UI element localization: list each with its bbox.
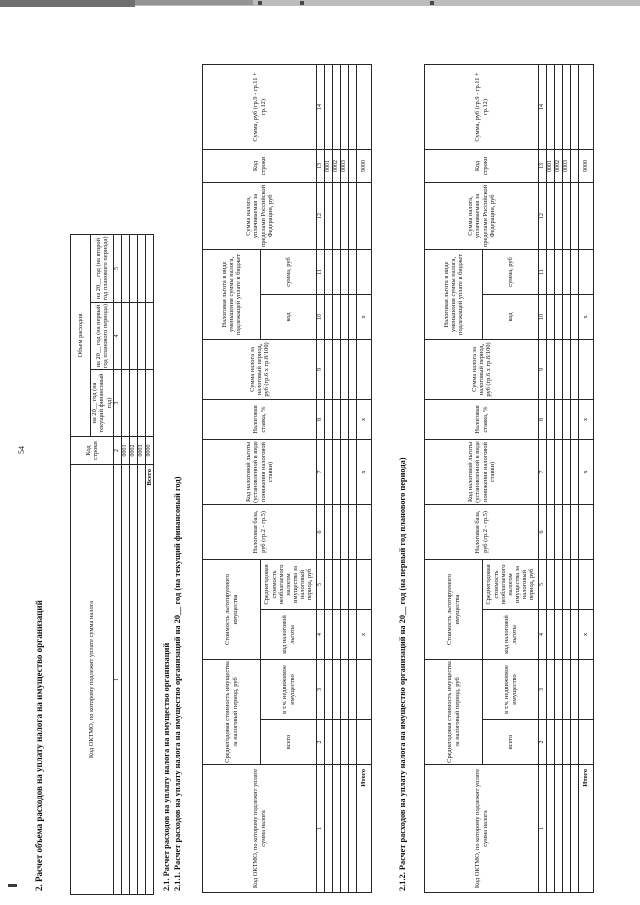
empty-cell bbox=[325, 659, 333, 719]
x-mark-cell: х bbox=[357, 439, 372, 504]
empty-cell bbox=[547, 659, 555, 719]
row-code-cell: 0003 bbox=[138, 437, 146, 465]
header-benefit-code-rate: Код налоговой льготы (установленной в ви… bbox=[203, 439, 317, 504]
col-number: 9 bbox=[539, 339, 547, 399]
empty-cell bbox=[571, 399, 579, 439]
header-line-code: Код строки bbox=[425, 149, 539, 182]
col-number: 4 bbox=[317, 609, 325, 659]
empty-cell bbox=[571, 659, 579, 719]
empty-cell bbox=[341, 399, 349, 439]
col-number: 2 bbox=[317, 720, 325, 765]
table-row bbox=[349, 64, 357, 892]
col-number: 1 bbox=[539, 765, 547, 893]
row-code-cell: 0002 bbox=[130, 437, 138, 465]
total-row: Итого х х х х 9000 bbox=[579, 64, 594, 892]
empty-cell bbox=[563, 64, 571, 149]
header-tax-rate: Налоговая ставка, % bbox=[203, 399, 317, 439]
empty-cell bbox=[555, 64, 563, 149]
header-benefit-code2: код bbox=[261, 294, 317, 339]
empty-cell bbox=[357, 659, 372, 719]
empty-cell bbox=[571, 294, 579, 339]
col-number: 4 bbox=[114, 303, 122, 370]
empty-cell bbox=[333, 559, 341, 609]
empty-cell bbox=[146, 370, 154, 437]
col-number: 1 bbox=[317, 765, 325, 893]
empty-cell bbox=[341, 609, 349, 659]
empty-cell bbox=[333, 249, 341, 294]
header-line-code: Код строки bbox=[203, 149, 317, 182]
empty-cell bbox=[130, 303, 138, 370]
row-code-cell: 0001 bbox=[122, 437, 130, 465]
header-sum-total: Сумма, руб (гр.9 - гр.11 + гр.12) bbox=[425, 64, 539, 149]
empty-cell bbox=[571, 559, 579, 609]
table-row: 0001 bbox=[547, 64, 555, 892]
empty-cell bbox=[325, 339, 333, 399]
empty-cell bbox=[333, 765, 341, 893]
empty-cell bbox=[563, 339, 571, 399]
empty-cell bbox=[563, 294, 571, 339]
empty-cell bbox=[579, 504, 594, 559]
empty-cell bbox=[130, 465, 138, 895]
col-number: 14 bbox=[539, 64, 547, 149]
empty-cell bbox=[357, 504, 372, 559]
x-mark-cell: х bbox=[357, 294, 372, 339]
total-label: Итого bbox=[357, 765, 372, 893]
empty-cell bbox=[571, 149, 579, 182]
empty-cell bbox=[122, 303, 130, 370]
empty-cell bbox=[563, 504, 571, 559]
scanned-page: 54 2. Расчет объема расходов на уплату н… bbox=[0, 0, 640, 905]
empty-cell bbox=[579, 720, 594, 765]
empty-cell bbox=[547, 504, 555, 559]
col-number: 6 bbox=[317, 504, 325, 559]
empty-cell bbox=[357, 249, 372, 294]
empty-cell bbox=[349, 720, 357, 765]
header-oktmo: Код ОКТМО, по которому подлежит уплате с… bbox=[203, 765, 317, 893]
x-mark-cell: х bbox=[579, 439, 594, 504]
empty-cell bbox=[333, 64, 341, 149]
empty-cell bbox=[122, 234, 130, 302]
header-incl-realty: в т.ч. недвижимое имущество bbox=[483, 659, 539, 719]
empty-cell bbox=[349, 182, 357, 249]
empty-cell bbox=[555, 439, 563, 504]
empty-cell bbox=[571, 249, 579, 294]
page-number: 54 bbox=[17, 435, 26, 465]
col-number: 5 bbox=[114, 234, 122, 302]
scan-tick-mark bbox=[430, 1, 434, 5]
empty-cell bbox=[555, 559, 563, 609]
header-group-exempt-value: Стоимость льготируемого имущества bbox=[203, 559, 261, 659]
empty-cell bbox=[555, 720, 563, 765]
subtitle-2-1-2: 2.1.2. Расчет расходов на уплату налога … bbox=[398, 457, 409, 891]
subtitle-2-1-1: 2.1.1. Расчет расходов на уплату налога … bbox=[173, 476, 184, 891]
empty-cell bbox=[547, 294, 555, 339]
empty-cell bbox=[325, 609, 333, 659]
empty-cell bbox=[122, 465, 130, 895]
col-number: 11 bbox=[539, 249, 547, 294]
empty-cell bbox=[547, 765, 555, 893]
empty-cell bbox=[357, 64, 372, 149]
empty-cell bbox=[130, 234, 138, 302]
header-benefit-sum: сумма, руб bbox=[483, 249, 539, 294]
empty-cell bbox=[349, 64, 357, 149]
col-number: 10 bbox=[317, 294, 325, 339]
header-total: всего bbox=[483, 720, 539, 765]
col-number: 13 bbox=[317, 149, 325, 182]
total-label: Итого bbox=[579, 765, 594, 893]
empty-cell bbox=[579, 249, 594, 294]
empty-cell bbox=[579, 339, 594, 399]
empty-cell bbox=[571, 64, 579, 149]
row-code-cell: 0001 bbox=[325, 149, 333, 182]
header-tax-sum: Сумма налога за налоговый период, руб (г… bbox=[425, 339, 539, 399]
col-number: 5 bbox=[317, 559, 325, 609]
col-number: 10 bbox=[539, 294, 547, 339]
expense-volume-table: Код ОКТМО, по которому подлежит уплате с… bbox=[70, 234, 154, 895]
table-row: 0003 bbox=[563, 64, 571, 892]
empty-cell bbox=[563, 765, 571, 893]
empty-cell bbox=[571, 504, 579, 559]
x-mark-cell: х bbox=[357, 399, 372, 439]
empty-cell bbox=[341, 64, 349, 149]
empty-cell bbox=[563, 182, 571, 249]
empty-cell bbox=[349, 659, 357, 719]
table-row: 0003 bbox=[341, 64, 349, 892]
empty-cell bbox=[555, 609, 563, 659]
empty-cell bbox=[357, 559, 372, 609]
empty-cell bbox=[547, 64, 555, 149]
empty-cell bbox=[563, 249, 571, 294]
empty-cell bbox=[555, 504, 563, 559]
col-number: 8 bbox=[317, 399, 325, 439]
empty-cell bbox=[349, 399, 357, 439]
col-number: 12 bbox=[317, 182, 325, 249]
empty-cell bbox=[333, 609, 341, 659]
empty-cell bbox=[547, 399, 555, 439]
row-code-cell: 0002 bbox=[555, 149, 563, 182]
scan-tick-mark bbox=[300, 1, 304, 5]
x-mark-cell: х bbox=[579, 399, 594, 439]
header-benefit-code2: код bbox=[483, 294, 539, 339]
empty-cell bbox=[555, 294, 563, 339]
empty-cell bbox=[325, 249, 333, 294]
header-group-benefit: Налоговая льгота в виде уменьшения суммы… bbox=[203, 249, 261, 339]
empty-cell bbox=[349, 339, 357, 399]
col-number: 2 bbox=[539, 720, 547, 765]
empty-cell bbox=[325, 64, 333, 149]
empty-cell bbox=[349, 504, 357, 559]
empty-cell bbox=[333, 399, 341, 439]
header-tax-paid-abroad: Сумма налога, уплачиваемая за пределами … bbox=[203, 182, 317, 249]
page-sheet: 54 2. Расчет объема расходов на уплату н… bbox=[0, 0, 640, 905]
table-row: 0002 bbox=[130, 234, 138, 894]
empty-cell bbox=[571, 439, 579, 504]
subtitle-2-1: 2.1. Расчет расходов на уплату налога на… bbox=[162, 643, 173, 891]
header-exempt-avg-value: Среднегодовая стоимость необлагаемого на… bbox=[483, 559, 539, 609]
total-row: Итого х х х х 9000 bbox=[357, 64, 372, 892]
col-number: 13 bbox=[539, 149, 547, 182]
scan-tick-mark bbox=[258, 1, 262, 5]
empty-cell bbox=[547, 439, 555, 504]
total-code-cell: 9000 bbox=[579, 149, 594, 182]
header-group-benefit: Налоговая льгота в виде уменьшения суммы… bbox=[425, 249, 483, 339]
empty-cell bbox=[349, 609, 357, 659]
empty-cell bbox=[571, 609, 579, 659]
empty-cell bbox=[563, 659, 571, 719]
empty-cell bbox=[341, 339, 349, 399]
empty-cell bbox=[357, 339, 372, 399]
header-tax-sum: Сумма налога за налоговый период, руб (г… bbox=[203, 339, 317, 399]
header-year-second: на 20__ год (на второй год планового пер… bbox=[91, 234, 114, 302]
empty-cell bbox=[571, 182, 579, 249]
empty-cell bbox=[325, 559, 333, 609]
row-code-cell: 0003 bbox=[563, 149, 571, 182]
total-label: Всего bbox=[146, 465, 154, 895]
empty-cell bbox=[341, 294, 349, 339]
table-row bbox=[571, 64, 579, 892]
empty-cell bbox=[357, 182, 372, 249]
empty-cell bbox=[547, 720, 555, 765]
table-row: 0003 bbox=[138, 234, 146, 894]
empty-cell bbox=[579, 182, 594, 249]
col-number: 9 bbox=[317, 339, 325, 399]
empty-cell bbox=[547, 559, 555, 609]
empty-cell bbox=[341, 765, 349, 893]
empty-cell bbox=[341, 720, 349, 765]
header-incl-realty: в т.ч. недвижимое имущество bbox=[261, 659, 317, 719]
empty-cell bbox=[333, 439, 341, 504]
empty-cell bbox=[357, 720, 372, 765]
col-number: 1 bbox=[114, 465, 122, 895]
empty-cell bbox=[325, 439, 333, 504]
header-tax-base: Налоговая база, руб (гр.2 - гр.5) bbox=[425, 504, 539, 559]
col-number: 12 bbox=[539, 182, 547, 249]
empty-cell bbox=[122, 370, 130, 437]
header-tax-paid-abroad: Сумма налога, уплачиваемая за пределами … bbox=[425, 182, 539, 249]
header-group-expenses: Объем расходов bbox=[71, 234, 91, 436]
empty-cell bbox=[349, 249, 357, 294]
empty-cell bbox=[547, 339, 555, 399]
empty-cell bbox=[333, 504, 341, 559]
col-number: 2 bbox=[114, 437, 122, 465]
empty-cell bbox=[333, 294, 341, 339]
empty-cell bbox=[341, 504, 349, 559]
empty-cell bbox=[325, 765, 333, 893]
empty-cell bbox=[146, 234, 154, 302]
total-code-cell: 9000 bbox=[146, 437, 154, 465]
empty-cell bbox=[333, 720, 341, 765]
header-tax-base: Налоговая база, руб (гр.2 - гр.5) bbox=[203, 504, 317, 559]
calc-table-first-plan-year: Код ОКТМО, по которому подлежит уплате с… bbox=[424, 64, 594, 893]
x-mark-cell: х bbox=[579, 294, 594, 339]
col-number: 14 bbox=[317, 64, 325, 149]
table-row: 0002 bbox=[333, 64, 341, 892]
empty-cell bbox=[547, 182, 555, 249]
header-total: всего bbox=[261, 720, 317, 765]
x-mark-cell: х bbox=[357, 609, 372, 659]
empty-cell bbox=[555, 249, 563, 294]
empty-cell bbox=[325, 294, 333, 339]
empty-cell bbox=[555, 399, 563, 439]
empty-cell bbox=[325, 504, 333, 559]
empty-cell bbox=[571, 339, 579, 399]
empty-cell bbox=[555, 659, 563, 719]
total-code-cell: 9000 bbox=[357, 149, 372, 182]
header-tax-rate: Налоговая ставка, % bbox=[425, 399, 539, 439]
empty-cell bbox=[333, 659, 341, 719]
header-benefit-code: код налоговой льготы bbox=[261, 609, 317, 659]
header-benefit-sum: сумма, руб bbox=[261, 249, 317, 294]
empty-cell bbox=[563, 399, 571, 439]
empty-cell bbox=[349, 294, 357, 339]
scan-corner-mark bbox=[8, 884, 17, 887]
empty-cell bbox=[547, 249, 555, 294]
empty-cell bbox=[349, 765, 357, 893]
row-code-cell: 0002 bbox=[333, 149, 341, 182]
empty-cell bbox=[579, 559, 594, 609]
empty-cell bbox=[341, 559, 349, 609]
header-year-current: на 20__ год (на текущий финансовый год) bbox=[91, 370, 114, 437]
empty-cell bbox=[563, 720, 571, 765]
col-number: 6 bbox=[539, 504, 547, 559]
header-group-avg-value: Среднегодовая стоимость имущества за нал… bbox=[425, 659, 483, 764]
col-number: 4 bbox=[539, 609, 547, 659]
header-exempt-avg-value: Среднегодовая стоимость необлагаемого на… bbox=[261, 559, 317, 609]
empty-cell bbox=[555, 339, 563, 399]
empty-cell bbox=[571, 720, 579, 765]
empty-cell bbox=[579, 64, 594, 149]
empty-cell bbox=[563, 609, 571, 659]
header-oktmo: Код ОКТМО, по которому подлежит уплате с… bbox=[425, 765, 539, 893]
empty-cell bbox=[563, 439, 571, 504]
empty-cell bbox=[325, 720, 333, 765]
header-sum-total: Сумма, руб (гр.9 - гр.11 + гр.12) bbox=[203, 64, 317, 149]
empty-cell bbox=[138, 465, 146, 895]
header-line-code: Код строки bbox=[71, 437, 114, 465]
scan-edge-dark-segment bbox=[0, 0, 135, 7]
empty-cell bbox=[138, 234, 146, 302]
x-mark-cell: х bbox=[579, 609, 594, 659]
empty-cell bbox=[555, 765, 563, 893]
empty-cell bbox=[325, 399, 333, 439]
row-code-cell: 0003 bbox=[341, 149, 349, 182]
empty-cell bbox=[349, 149, 357, 182]
row-code-cell: 0001 bbox=[547, 149, 555, 182]
empty-cell bbox=[341, 182, 349, 249]
empty-cell bbox=[130, 370, 138, 437]
col-number: 7 bbox=[539, 439, 547, 504]
header-year-first: на 20__ год (на первый год планового пер… bbox=[91, 303, 114, 370]
empty-cell bbox=[579, 659, 594, 719]
header-benefit-code-rate: Код налоговой льготы (установленной в ви… bbox=[425, 439, 539, 504]
empty-cell bbox=[341, 249, 349, 294]
empty-cell bbox=[349, 559, 357, 609]
empty-cell bbox=[547, 609, 555, 659]
empty-cell bbox=[341, 659, 349, 719]
header-group-avg-value: Среднегодовая стоимость имущества за нал… bbox=[203, 659, 261, 764]
calc-table-current-year: Код ОКТМО, по которому подлежит уплате с… bbox=[202, 64, 372, 893]
header-benefit-code: код налоговой льготы bbox=[483, 609, 539, 659]
empty-cell bbox=[138, 370, 146, 437]
table-row: 0001 bbox=[325, 64, 333, 892]
col-number: 3 bbox=[317, 659, 325, 719]
empty-cell bbox=[333, 182, 341, 249]
empty-cell bbox=[138, 303, 146, 370]
empty-cell bbox=[555, 182, 563, 249]
scan-edge-artifact bbox=[0, 0, 640, 6]
empty-cell bbox=[571, 765, 579, 893]
empty-cell bbox=[563, 559, 571, 609]
scan-edge-mid-segment bbox=[135, 0, 253, 5]
col-number: 7 bbox=[317, 439, 325, 504]
col-number: 5 bbox=[539, 559, 547, 609]
empty-cell bbox=[349, 439, 357, 504]
section-title: 2. Расчет объема расходов на уплату нало… bbox=[34, 600, 44, 891]
table-row: 0001 bbox=[122, 234, 130, 894]
header-group-exempt-value: Стоимость льготируемого имущества bbox=[425, 559, 483, 659]
col-number: 11 bbox=[317, 249, 325, 294]
empty-cell bbox=[325, 182, 333, 249]
header-oktmo: Код ОКТМО, по которому подлежит уплате с… bbox=[71, 465, 114, 895]
col-number: 3 bbox=[114, 370, 122, 437]
empty-cell bbox=[146, 303, 154, 370]
col-number: 3 bbox=[539, 659, 547, 719]
empty-cell bbox=[341, 439, 349, 504]
total-row: Всего 9000 bbox=[146, 234, 154, 894]
empty-cell bbox=[333, 339, 341, 399]
col-number: 8 bbox=[539, 399, 547, 439]
table-row: 0002 bbox=[555, 64, 563, 892]
